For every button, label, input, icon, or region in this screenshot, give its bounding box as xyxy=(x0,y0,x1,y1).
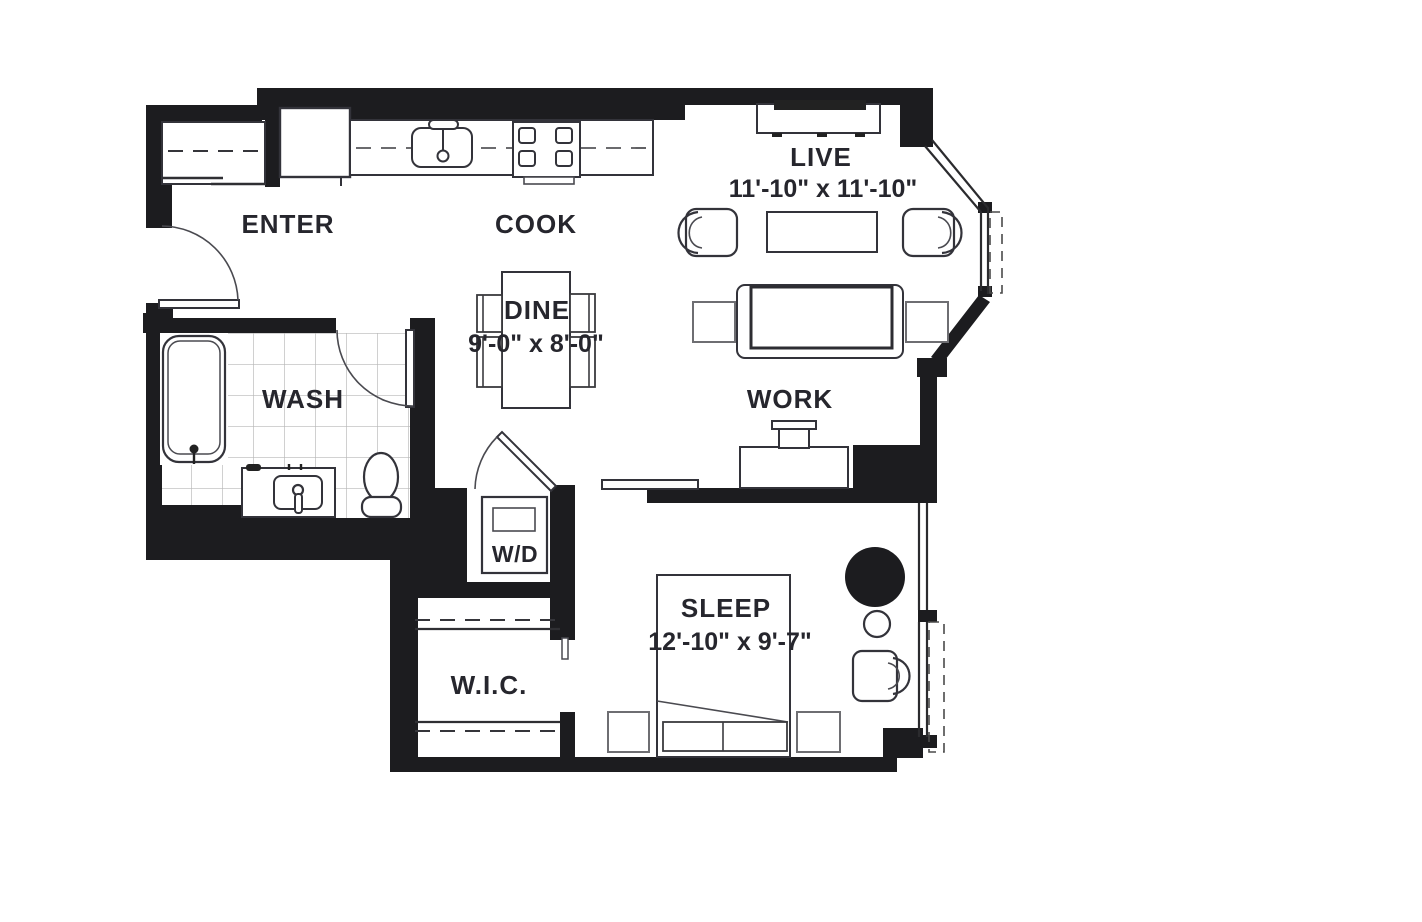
console-foot xyxy=(855,133,865,137)
wall-sleep-corner-step xyxy=(883,728,923,758)
wall-top-entry xyxy=(146,105,262,122)
work-furniture xyxy=(740,421,848,488)
wall-bath-corner xyxy=(143,313,172,333)
coffee-table xyxy=(767,212,877,252)
wall-sleep-window-mullion xyxy=(918,610,937,622)
label-dine: DINE xyxy=(504,295,570,325)
dining-chair xyxy=(477,295,502,332)
closet-door-panel xyxy=(562,638,568,659)
sleep-window-upper xyxy=(919,503,927,610)
wall-closet-column xyxy=(265,105,280,187)
wall-corner-top-right xyxy=(900,88,933,147)
stove-burner xyxy=(519,151,535,166)
entry-door-swing-arc xyxy=(162,226,238,300)
floor-plan-svg: ENTER COOK LIVE 11'-10" x 11'-10" DINE 9… xyxy=(0,0,1422,922)
console-foot xyxy=(817,133,827,137)
label-wash: WASH xyxy=(262,384,344,414)
floor-plan-canvas: ENTER COOK LIVE 11'-10" x 11'-10" DINE 9… xyxy=(0,0,1422,922)
toilet-tank xyxy=(362,497,401,517)
round-table xyxy=(845,547,905,607)
wall-bottom xyxy=(390,757,897,772)
label-walk-in-closet: W.I.C. xyxy=(451,670,528,700)
side-table-left xyxy=(693,302,735,342)
bedroom-sliding-door xyxy=(602,480,698,489)
live-balcony-dashed xyxy=(990,212,1002,293)
label-sleep-dimensions: 12'-10" x 9'-7" xyxy=(648,628,811,656)
sleep-balcony-dashed xyxy=(929,622,944,752)
bathtub xyxy=(163,336,225,462)
bed-footboard xyxy=(663,722,787,751)
stove-front-lip xyxy=(524,177,574,184)
label-cook: COOK xyxy=(495,209,577,239)
laundry-door-leaf xyxy=(497,432,556,491)
entry-door-leaf xyxy=(159,300,239,308)
label-laundry: W/D xyxy=(492,541,538,567)
stool xyxy=(864,611,890,637)
bathroom-door-leaf xyxy=(406,330,414,407)
vanity-faucet xyxy=(295,494,302,513)
wall-left-pilaster xyxy=(146,178,172,228)
wall-closet-bottom-block xyxy=(560,712,575,759)
bedroom-chair xyxy=(853,651,897,701)
toilet-bowl xyxy=(364,453,398,501)
armchair-left xyxy=(686,209,737,256)
refrigerator xyxy=(280,108,350,177)
tub-drain xyxy=(190,445,199,454)
wall-bath-bottom-left xyxy=(146,505,242,560)
stove-burner xyxy=(556,128,572,143)
label-sleep: SLEEP xyxy=(681,593,771,623)
label-live: LIVE xyxy=(790,142,852,172)
stove-burner xyxy=(556,151,572,166)
entry-fixtures xyxy=(159,108,350,308)
desk xyxy=(740,447,848,488)
nightstand-left xyxy=(608,712,649,752)
desk-chair-back xyxy=(772,421,816,429)
sink-drain xyxy=(438,151,449,162)
wall-bath-top xyxy=(146,318,336,333)
laundry-door-swing-arc xyxy=(475,437,497,489)
console-foot xyxy=(772,133,782,137)
nightstand-right xyxy=(797,712,840,752)
wall-laundry-right xyxy=(550,485,575,640)
dining-chair xyxy=(570,294,595,332)
label-enter: ENTER xyxy=(241,209,334,239)
label-work: WORK xyxy=(747,384,833,414)
vanity-accessory xyxy=(246,464,261,471)
stove-burner xyxy=(519,128,535,143)
armchair-right xyxy=(903,209,954,256)
sink-faucet-bar xyxy=(429,120,458,129)
tv xyxy=(774,100,866,110)
side-table-right xyxy=(906,302,948,342)
label-live-dimensions: 11'-10" x 11'-10" xyxy=(729,175,918,203)
entry-closet xyxy=(162,122,265,184)
kitchen-fixtures xyxy=(350,120,653,184)
sleep-window-lower xyxy=(919,622,927,737)
label-dine-dimensions: 9'-0" x 8'-0" xyxy=(468,330,604,358)
desk-chair-seat xyxy=(779,429,809,448)
wall-work-mass xyxy=(853,445,927,491)
